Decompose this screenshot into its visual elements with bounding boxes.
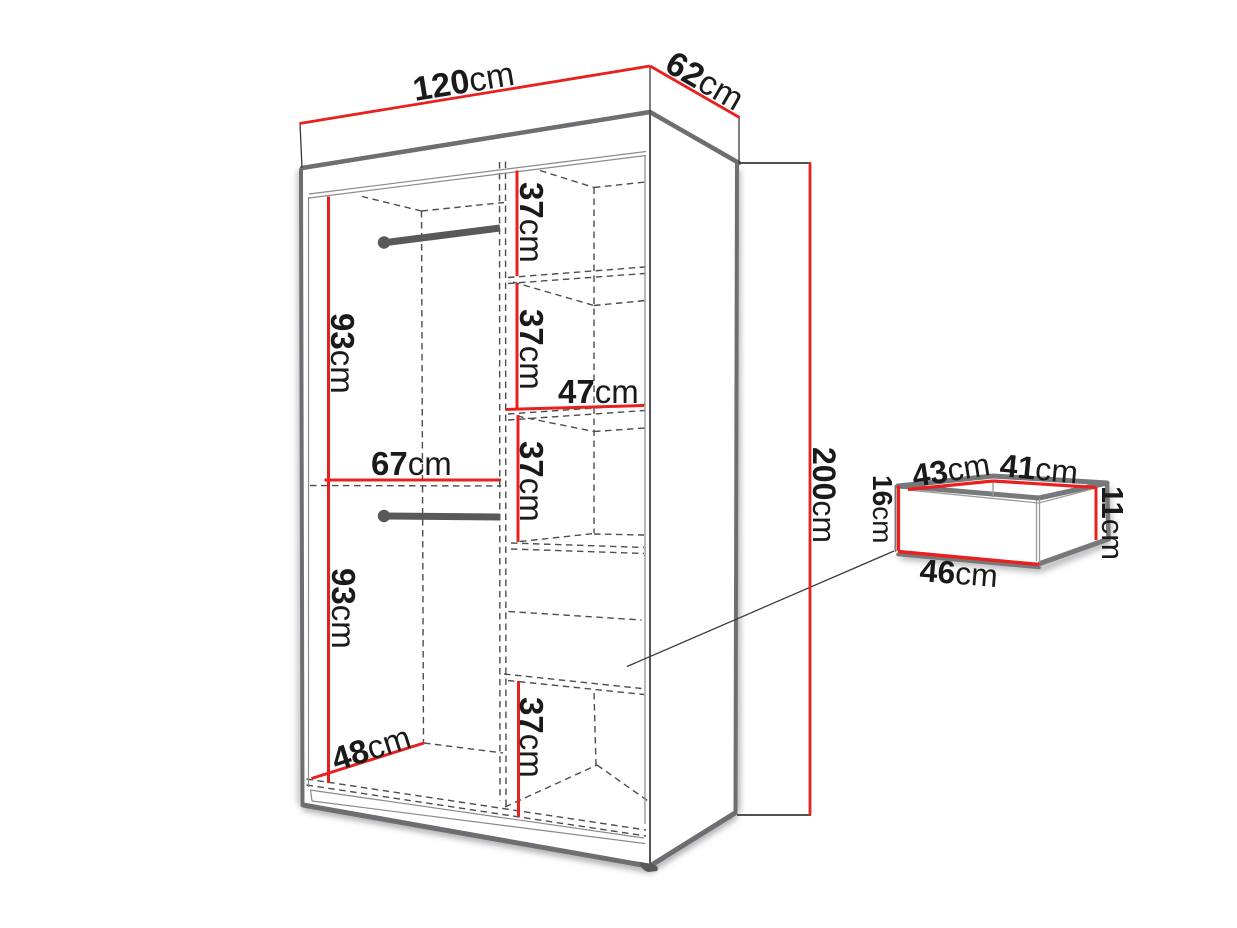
svg-text:16cm: 16cm (867, 475, 898, 543)
svg-text:47cm: 47cm (558, 373, 639, 410)
svg-text:11cm: 11cm (1095, 486, 1130, 560)
svg-text:200cm: 200cm (806, 447, 842, 543)
svg-text:37cm: 37cm (513, 697, 550, 778)
svg-text:67cm: 67cm (371, 445, 452, 482)
svg-text:93cm: 93cm (325, 568, 362, 649)
svg-text:41cm: 41cm (998, 447, 1079, 490)
svg-text:46cm: 46cm (918, 552, 999, 594)
svg-text:37cm: 37cm (513, 182, 550, 263)
svg-text:93cm: 93cm (324, 313, 361, 394)
svg-text:37cm: 37cm (513, 441, 550, 522)
svg-text:37cm: 37cm (513, 309, 550, 390)
